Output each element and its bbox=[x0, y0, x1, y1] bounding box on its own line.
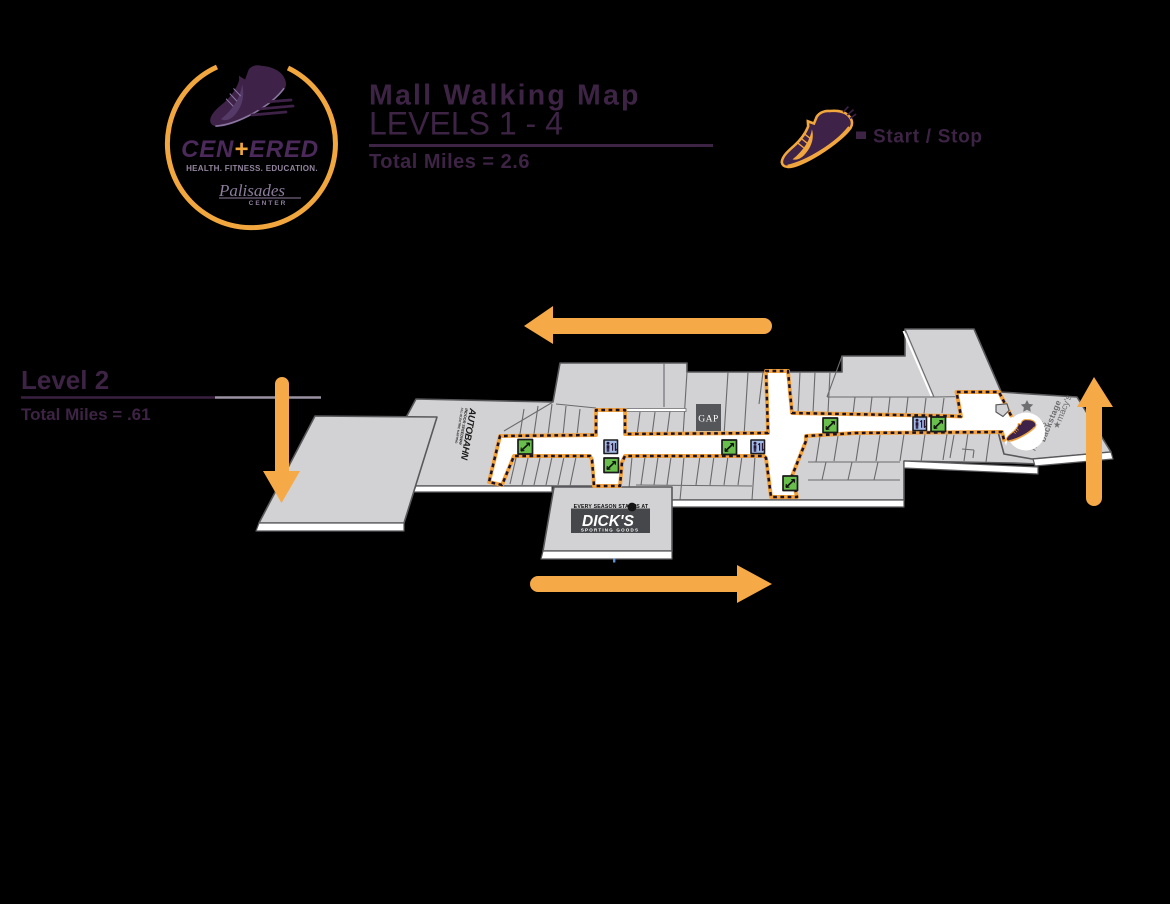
svg-text:Total Miles = 2.6: Total Miles = 2.6 bbox=[369, 151, 530, 173]
svg-text:GAP: GAP bbox=[698, 415, 719, 425]
svg-text:Total Miles = .61: Total Miles = .61 bbox=[21, 405, 151, 424]
svg-text:SPORTING GOODS: SPORTING GOODS bbox=[581, 528, 639, 533]
svg-text:Level 2: Level 2 bbox=[21, 365, 109, 395]
svg-text:Start / Stop: Start / Stop bbox=[873, 127, 983, 148]
svg-text:LEVELS 1 - 4: LEVELS 1 - 4 bbox=[369, 106, 563, 142]
svg-text:CEN+ERED: CEN+ERED bbox=[181, 136, 319, 163]
svg-text:Palisades: Palisades bbox=[218, 181, 285, 200]
svg-text:CENTER: CENTER bbox=[249, 200, 288, 207]
svg-text:HEALTH. FITNESS. EDUCATION.: HEALTH. FITNESS. EDUCATION. bbox=[186, 164, 318, 173]
